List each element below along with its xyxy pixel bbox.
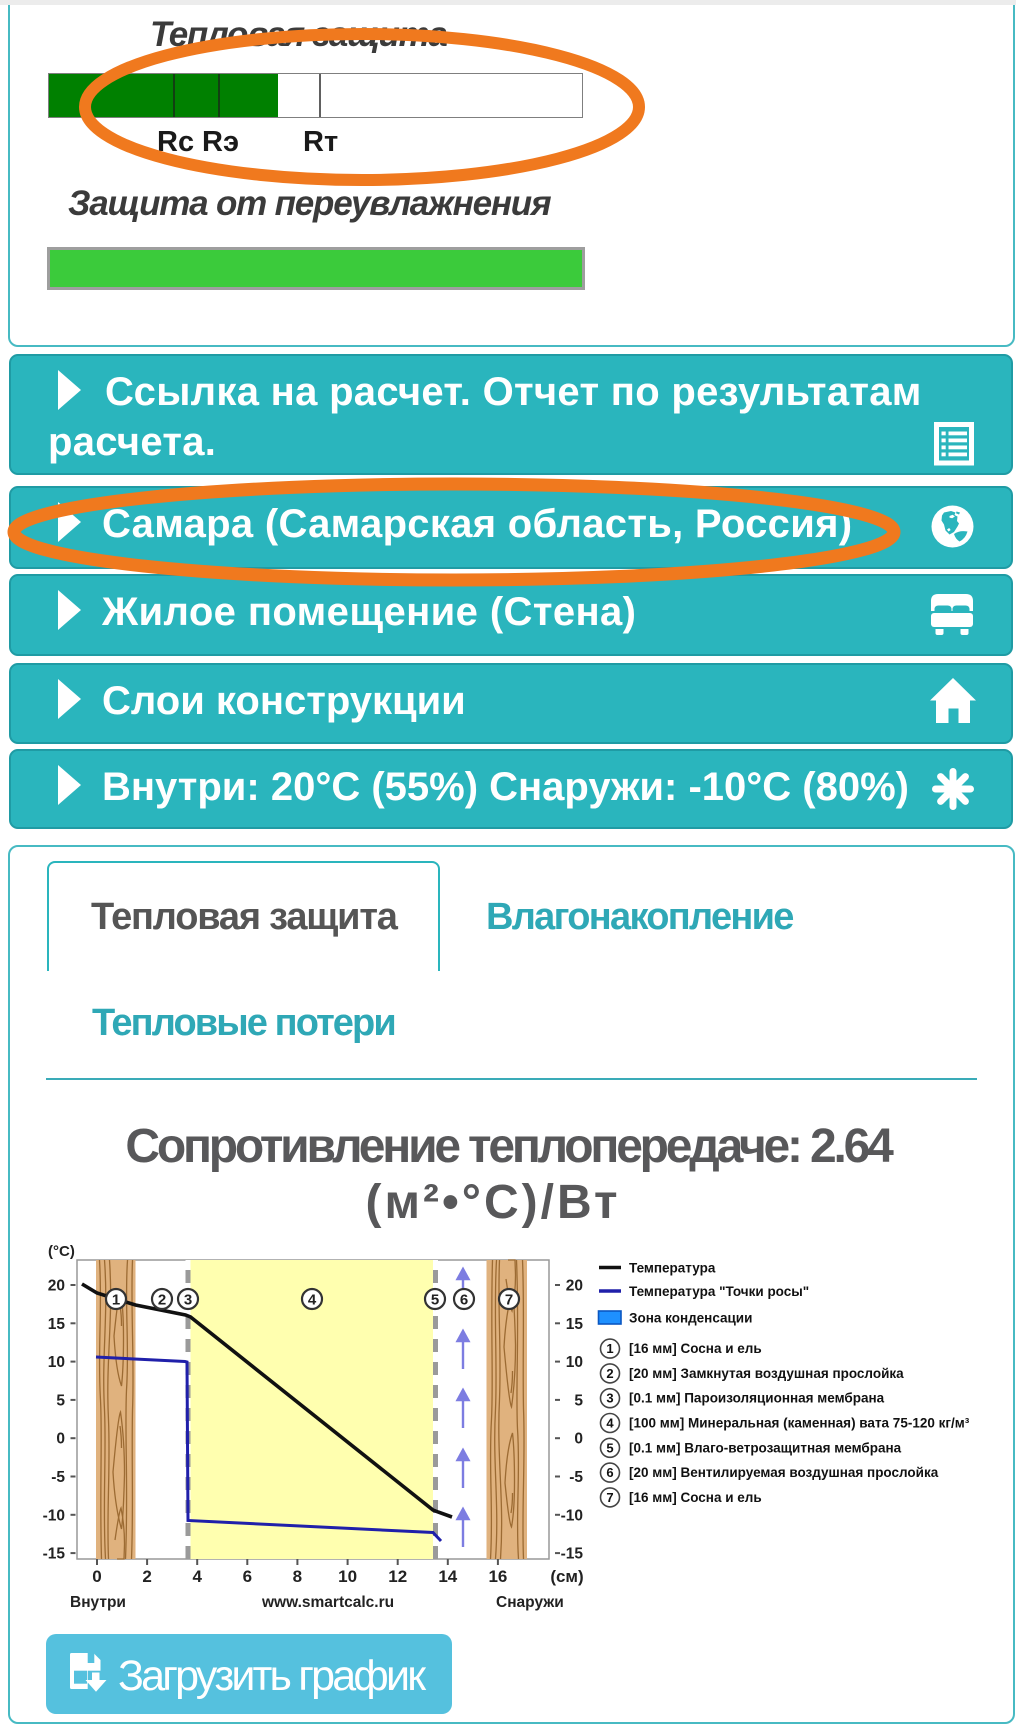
svg-text:[100 мм] Минеральная (каменная: [100 мм] Минеральная (каменная) вата 75-… [629,1416,970,1431]
svg-text:(см): (см) [550,1567,583,1586]
svg-text:6: 6 [460,1292,468,1309]
svg-text:0: 0 [574,1431,583,1448]
svg-text:-5: -5 [569,1469,583,1486]
svg-text:Температура: Температура [629,1261,716,1276]
svg-text:12: 12 [388,1567,407,1586]
svg-text:16: 16 [488,1567,507,1586]
svg-text:4: 4 [192,1567,202,1586]
svg-text:Внутри: Внутри [70,1594,126,1611]
svg-text:4: 4 [606,1416,614,1431]
svg-text:(°С): (°С) [48,1243,75,1260]
svg-text:5: 5 [56,1392,65,1409]
svg-text:-5: -5 [51,1469,65,1486]
svg-text:Зона конденсации: Зона конденсации [629,1311,752,1326]
svg-text:0: 0 [56,1431,65,1448]
svg-text:-10: -10 [561,1507,583,1524]
svg-text:-15: -15 [561,1546,584,1563]
svg-text:20: 20 [48,1278,65,1295]
svg-text:3: 3 [184,1292,192,1309]
svg-text:-10: -10 [43,1507,65,1524]
svg-text:14: 14 [438,1567,457,1586]
svg-text:Снаружи: Снаружи [496,1594,564,1611]
svg-text:2: 2 [158,1292,166,1309]
svg-text:3: 3 [606,1391,613,1406]
svg-text:[0.1 мм] Влаго-ветрозащитная м: [0.1 мм] Влаго-ветрозащитная мембрана [629,1440,902,1455]
svg-text:10: 10 [338,1567,357,1586]
svg-text:8: 8 [293,1567,302,1586]
svg-text:20: 20 [566,1278,583,1295]
svg-text:www.smartcalc.ru: www.smartcalc.ru [261,1594,394,1611]
svg-text:2: 2 [606,1366,613,1381]
svg-text:-15: -15 [43,1546,66,1563]
svg-text:10: 10 [48,1354,65,1371]
svg-text:[20 мм] Вентилируемая воздушна: [20 мм] Вентилируемая воздушная прослойк… [629,1465,939,1480]
svg-text:1: 1 [112,1292,120,1309]
svg-text:2: 2 [142,1567,151,1586]
svg-text:5: 5 [606,1440,613,1455]
svg-text:[16 мм] Сосна и ель: [16 мм] Сосна и ель [629,1490,762,1505]
svg-text:10: 10 [566,1354,583,1371]
svg-text:6: 6 [606,1465,613,1480]
svg-text:15: 15 [566,1316,584,1333]
svg-text:0: 0 [92,1567,101,1586]
svg-text:1: 1 [606,1341,613,1356]
svg-text:7: 7 [606,1490,613,1505]
svg-text:[16 мм] Сосна и ель: [16 мм] Сосна и ель [629,1341,762,1356]
svg-text:[0.1 мм] Пароизоляционная мемб: [0.1 мм] Пароизоляционная мембрана [629,1391,885,1406]
svg-text:4: 4 [308,1292,317,1309]
svg-text:5: 5 [574,1392,583,1409]
svg-text:15: 15 [48,1316,66,1333]
svg-text:6: 6 [243,1567,252,1586]
svg-text:5: 5 [431,1292,439,1309]
svg-text:7: 7 [505,1292,513,1309]
svg-text:[20 мм] Замкнутая воздушная пр: [20 мм] Замкнутая воздушная прослойка [629,1366,904,1381]
svg-text:Температура "Точки росы": Температура "Точки росы" [629,1284,809,1299]
